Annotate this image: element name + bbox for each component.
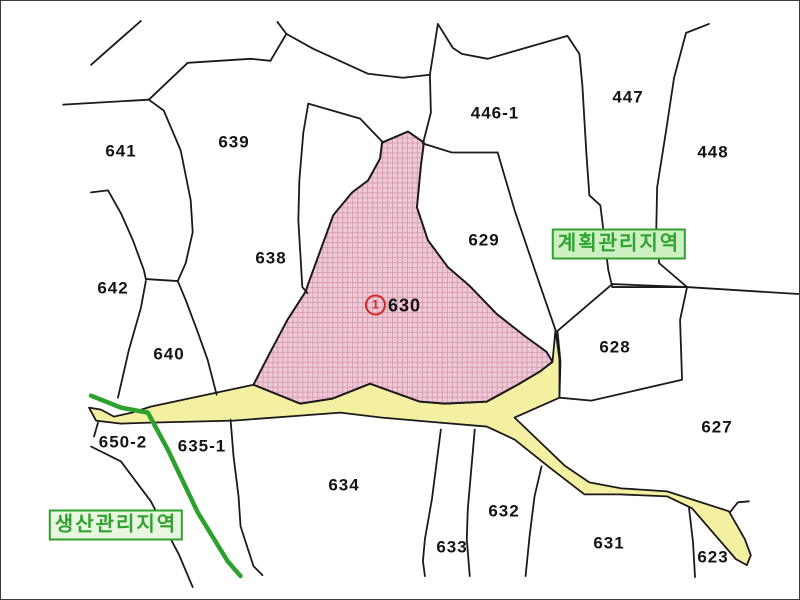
parcel-label-634: 634: [328, 477, 359, 494]
parcel-label-638: 638: [255, 250, 286, 267]
parcel-label-640: 640: [153, 346, 184, 363]
parcel-label-447: 447: [612, 89, 643, 106]
parcel-label-642: 642: [97, 280, 128, 297]
map-canvas[interactable]: 641 639 638 642 640 446-1 447 448 629 62…: [0, 0, 800, 600]
parcel-label-632: 632: [488, 503, 519, 520]
parcel-label-629: 629: [468, 232, 499, 249]
parcel-label-650-2: 650-2: [99, 434, 147, 451]
red-circle-1-icon: 1: [365, 295, 386, 316]
parcel-label-627: 627: [701, 419, 732, 436]
parcel-label-448: 448: [697, 144, 728, 161]
highlight-parcel-number: 630: [388, 296, 421, 314]
parcel-label-641: 641: [105, 143, 136, 160]
parcel-label-635-1: 635-1: [178, 438, 226, 455]
parcel-label-623: 623: [697, 549, 728, 566]
parcel-label-631: 631: [593, 535, 624, 552]
parcel-label-633: 633: [436, 539, 467, 556]
zone-label-planned-management: 계획관리지역: [552, 229, 686, 260]
highlight-marker-630: 1 630: [365, 295, 421, 316]
parcel-label-446-1: 446-1: [471, 105, 519, 122]
parcel-label-628: 628: [599, 339, 630, 356]
parcel-label-639: 639: [218, 134, 249, 151]
zone-label-production-management: 생산관리지역: [49, 510, 183, 541]
highlight-parcel-630-polygon: [253, 132, 552, 404]
